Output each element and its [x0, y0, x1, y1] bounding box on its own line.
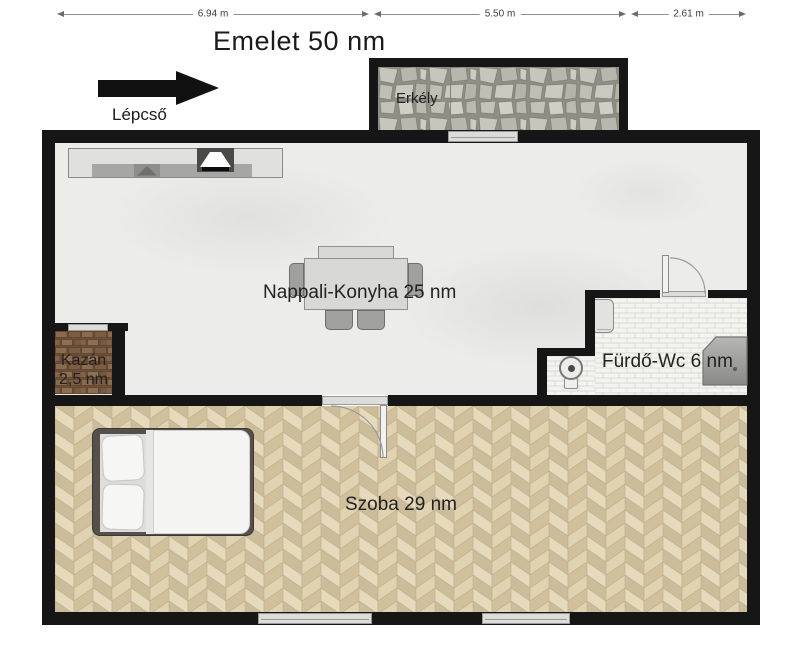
boiler-label-line1: Kazán	[55, 351, 112, 370]
balcony-label: Erkély	[396, 90, 438, 107]
bedroom-label: Szoba 29 nm	[345, 494, 457, 516]
bathroom-door-arc	[670, 258, 705, 293]
floor-plan: 6.94 m 5.50 m 2.61 m Emelet 50 nm Lépcső	[0, 0, 800, 655]
living-room-label: Nappali-Konyha 25 nm	[263, 282, 456, 304]
boiler-room-label: Kazán 2,5 nm	[55, 351, 112, 389]
boiler-label-line2: 2,5 nm	[55, 370, 112, 389]
shower-drain-icon	[733, 367, 737, 371]
bathroom-label: Fürdő-Wc 6 nm	[602, 351, 733, 373]
bedroom-door-arc	[331, 406, 383, 457]
